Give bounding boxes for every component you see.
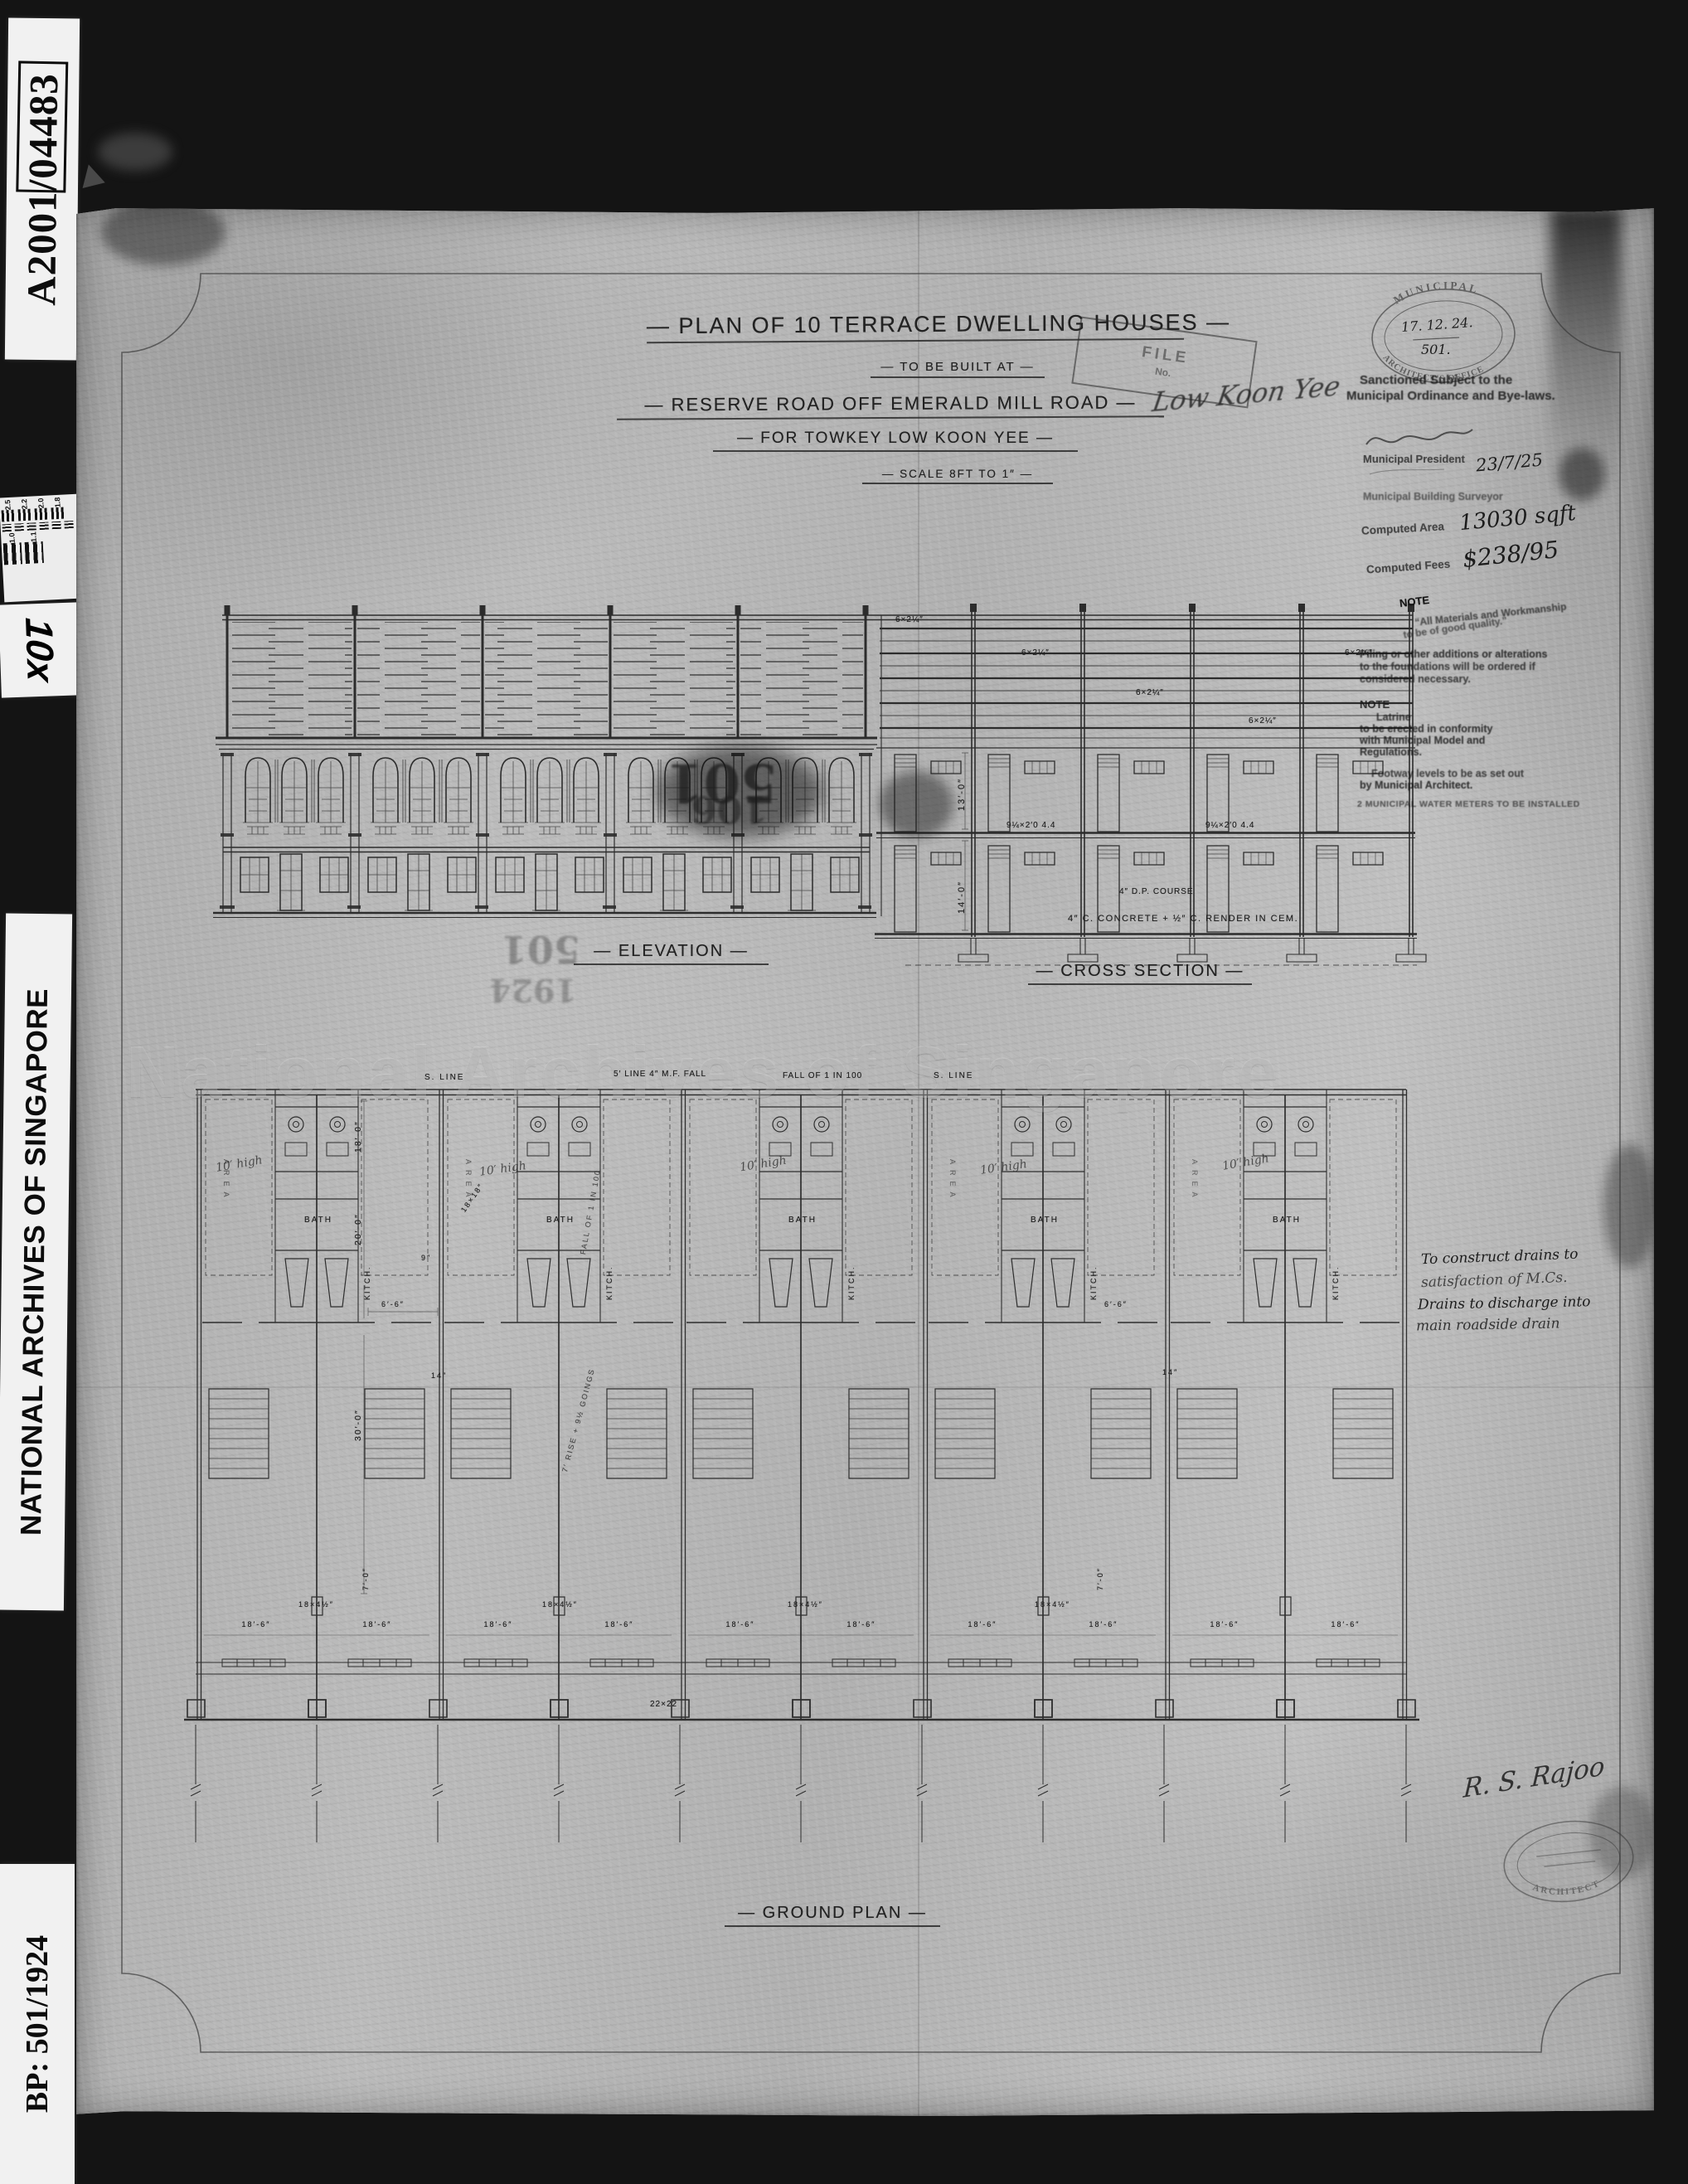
fall-gradient-label: FALL OF 1 IN 100 [783,1071,862,1080]
president-title: Municipal President [1363,453,1465,465]
calibration-bars [34,508,48,521]
room-label-kitchen: KITCH. [1089,1265,1098,1300]
calibration-row-top: 2.5 2.2 2.0 1.8 [1,497,78,522]
floor-slab-label: 4″ C. CONCRETE + ½″ C. RENDER IN CEM. [1068,914,1298,924]
file-stamp-line2: No. [1154,366,1171,380]
bay-width-dim: 18′-6″ [958,1620,1007,1628]
dim-label: 9″ [421,1254,431,1262]
dim-label: 30′-0″ [353,1409,363,1441]
room-label-bath: BATH [300,1216,337,1225]
room-label-kitchen: KITCH. [363,1265,371,1300]
drain-fall-line-label: 5′ LINE 4″ M.F. FALL [614,1070,706,1079]
rafter-size-label: 6×2¼″ [895,615,924,624]
bay-width-dim: 18′-6″ [231,1620,281,1628]
rafter-size-label: 6×2¼″ [1249,716,1277,726]
note3-line2: to be erected in conformity [1360,723,1492,735]
plan-reference-text: BP: 501/1924 [19,1935,56,2113]
room-label-bath: BATH [784,1216,821,1225]
bay-width-dim: 18′-6″ [1079,1620,1128,1628]
room-label-kitchen: KITCH. [847,1265,856,1300]
note2-line2: to the foundations will be ordered if [1360,661,1535,672]
calibration-bars [18,509,32,522]
room-label-kitchen: KITCH. [605,1265,614,1300]
yard-label-area: AREA [948,1159,957,1203]
dim-label: 14″ [1162,1368,1178,1376]
rafter-size-label: 6×2¼″ [1021,648,1050,658]
archive-name-label: NATIONAL ARCHIVES OF SINGAPORE [0,914,72,1611]
calibration-bars [25,541,44,564]
room-label-bath: BATH [1026,1216,1063,1225]
film-blemish [98,133,172,171]
note2-line1: Piling or other additions or alterations [1360,648,1547,660]
registration-triangle-mark [77,162,104,188]
svg-text:MUNICIPAL: MUNICIPAL [1390,277,1482,307]
dim-label: 7′-0″ [1096,1567,1104,1590]
dim-label: 14″ [431,1371,447,1380]
bay-width-dim: 18′-6″ [715,1620,765,1628]
note3-line3: with Municipal Model and [1360,735,1485,746]
calibration-number: 2.5 [3,500,12,511]
column-size-label: 22×22 [650,1700,677,1709]
note3-head: NOTE [1360,698,1390,711]
bay-width-dim: 18′-6″ [1321,1620,1370,1628]
calibration-bars [2,510,16,522]
plan-reference-label: BP: 501/1924 [0,1864,75,2184]
ghost-number: 1924 [489,972,577,1009]
room-label-kitchen: KITCH. [1331,1265,1340,1300]
accession-number-label: A2001/04483 [5,18,80,361]
bay-width-dim: 18′-6″ [837,1620,886,1628]
yard-label-area: AREA [1191,1159,1199,1203]
wall-size-label: 18×4½″ [1035,1600,1070,1609]
bay-width-dim: 18′-6″ [352,1620,402,1628]
note3-line4: Regulations. [1360,746,1422,758]
dim-label: 6′-6″ [381,1300,405,1308]
note3-line1: Latrine [1376,711,1411,723]
magnification-label: 10x [0,602,81,697]
storey-height-lower: 14′-0″ [957,881,967,914]
rafter-size-label: 6×2¼″ [1136,688,1164,697]
sanction-line1: Sanctioned Subject to the [1360,373,1512,387]
room-label-bath: BATH [1268,1216,1305,1225]
sanction-line2: Municipal Ordinance and Bye-laws. [1346,389,1555,403]
drawing-subtitle: — TO BE BUILT AT — [871,360,1045,378]
calibration-bars [51,507,65,519]
cross-section-caption: — CROSS SECTION — [1028,962,1252,985]
bay-width-dim: 18′-6″ [594,1620,644,1628]
beam-size-label: 9¼×2′0 4.4 [1205,821,1254,830]
calibration-bars [3,542,22,565]
calibration-number: 1.0 [7,532,17,543]
blueprint-paper: MUNICIPAL ARCHITECT'S OFFICE ARCHITECT [76,207,1654,2116]
calibration-row-bottom: 1.0 1.1 [2,531,80,565]
surveyor-title: Municipal Building Surveyor [1363,491,1503,502]
stamp-number: 501. [1421,342,1451,357]
note2-line3: considered necessary. [1360,673,1471,685]
archival-scan-page: A2001/04483 2.5 2.2 2.0 1.8 1.0 1.1 10x [0,0,1688,2184]
dim-label: 18′-0″ [353,1120,363,1153]
site-line-label: S. LINE [424,1073,464,1082]
dim-label: 7′-0″ [361,1567,370,1590]
room-label-bath: BATH [542,1216,579,1225]
drawing-client: — FOR TOWKEY LOW KOON YEE — [713,430,1078,452]
ghost-number: 501 [501,927,580,972]
wall-size-label: 18×4½″ [298,1600,334,1609]
drain-note-line3: Drains to discharge into [1418,1293,1591,1313]
calibration-number: 1.8 [53,497,62,507]
beam-size-label: 9¼×2′0 4.4 [1006,821,1055,830]
drain-note-line4: main roadside drain [1416,1315,1560,1334]
ghost-number: 106 [691,788,768,830]
calibration-number: 2.2 [20,499,29,510]
rafter-size-label: 6×2¼″ [1345,648,1373,658]
wall-size-label: 18×4½″ [542,1600,578,1609]
wall-size-label: 18×4½″ [788,1600,823,1609]
calibration-number: 2.0 [36,497,46,508]
archive-name-text: NATIONAL ARCHIVES OF SINGAPORE [15,988,55,1536]
note4-line2: by Municipal Architect. [1360,779,1472,791]
ground-plan-caption: — GROUND PLAN — [725,1904,940,1927]
accession-number-text: A2001/04483 [17,72,67,305]
dpc-label: 4″ D.P. COURSE [1119,887,1194,896]
dim-label: 6′-6″ [1104,1300,1128,1308]
calibration-number: 1.1 [29,531,38,542]
bay-width-dim: 18′-6″ [1200,1620,1249,1628]
storey-height-upper: 13′-0″ [957,778,967,811]
bay-width-dim: 18′-6″ [473,1620,523,1628]
drawing-scale: — SCALE 8FT TO 1″ — [862,468,1053,484]
elevation-caption: — ELEVATION — [574,942,769,965]
dim-label: 20′-0″ [353,1213,363,1245]
drawing-location: — RESERVE ROAD OFF EMERALD MILL ROAD — [617,391,1164,420]
note5-meters: 2 MUNICIPAL WATER METERS TO BE INSTALLED [1357,799,1580,809]
stamp-office-top: MUNICIPAL [1390,277,1482,307]
file-stamp-line1: FILE [1141,343,1191,368]
magnification-text: 10x [17,617,64,683]
note4-line1: Footway levels to be as set out [1371,768,1524,779]
site-line-label: S. LINE [934,1071,973,1080]
calibration-target: 2.5 2.2 2.0 1.8 1.0 1.1 [0,494,84,603]
